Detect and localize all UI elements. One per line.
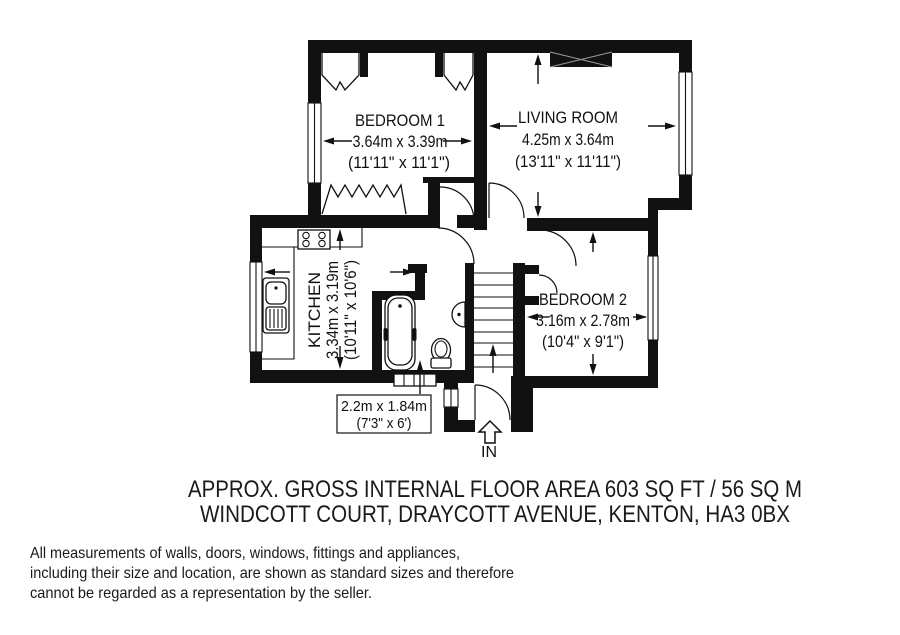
bath-icon <box>384 295 417 370</box>
disclaimer: All measurements of walls, doors, window… <box>30 545 514 602</box>
living-room-window-icon <box>679 72 692 175</box>
bedroom2-metric: 3.16m x 2.78m <box>536 311 630 330</box>
kitchen-metric: 3.34m x 3.19m <box>323 261 342 359</box>
entrance-arrow-icon <box>479 421 501 443</box>
porch-step-icon <box>394 374 436 386</box>
bathroom-callout: 2.2m x 1.84m (7'3" x 6') <box>337 395 431 433</box>
floorplan-drawing: BEDROOM 1 3.64m x 3.39m (11'11" x 11'1")… <box>0 0 900 635</box>
kitchen-imperial: (10'11" x 10'6") <box>341 260 360 360</box>
chimney-breast-icon <box>550 52 612 67</box>
bedroom2-imperial: (10'4" x 9'1") <box>542 332 624 351</box>
basin-icon <box>452 302 465 327</box>
disclaimer-line2: including their size and location, are s… <box>30 565 514 582</box>
disclaimer-line3: cannot be regarded as a representation b… <box>30 585 372 602</box>
bedroom1-window-icon <box>308 103 321 183</box>
living-room-imperial: (13'11" x 11'11") <box>515 152 621 171</box>
footer-area-line: APPROX. GROSS INTERNAL FLOOR AREA 603 SQ… <box>188 476 802 503</box>
bedroom1-imperial: (11'11" x 11'1") <box>348 153 450 172</box>
wardrobe-bay2-icon <box>435 52 473 90</box>
stairs-up-arrow-icon <box>490 344 497 356</box>
disclaimer-line1: All measurements of walls, doors, window… <box>30 545 460 562</box>
bedroom2-window-icon <box>648 256 658 340</box>
living-room-metric: 4.25m x 3.64m <box>522 130 614 149</box>
front-door-arc <box>475 385 510 420</box>
bathroom-door-arc <box>438 228 474 264</box>
bedroom2-name: BEDROOM 2 <box>539 290 627 309</box>
entrance-marker: IN <box>479 421 501 461</box>
bedroom2-door-arc <box>540 230 576 266</box>
living-room-name: LIVING ROOM <box>518 108 618 127</box>
kitchen-window-icon <box>250 262 262 352</box>
wardrobe-zigzag-icon <box>322 185 406 214</box>
floorplan-page: BEDROOM 1 3.64m x 3.39m (11'11" x 11'1")… <box>0 0 900 635</box>
bathroom-imperial: (7'3" x 6') <box>357 415 412 432</box>
bedroom1-metric: 3.64m x 3.39m <box>353 132 448 151</box>
footer-address-line: WINDCOTT COURT, DRAYCOTT AVENUE, KENTON,… <box>200 501 790 528</box>
bathroom-metric: 2.2m x 1.84m <box>341 398 427 415</box>
wardrobe-bay1-icon <box>322 52 368 90</box>
footer: APPROX. GROSS INTERNAL FLOOR AREA 603 SQ… <box>188 476 802 528</box>
sink-icon <box>263 278 289 333</box>
entrance-label: IN <box>481 444 497 461</box>
stairs <box>474 273 513 373</box>
porch-window-icon <box>444 389 458 407</box>
toilet-icon <box>431 339 451 369</box>
living-room-door-arc <box>489 183 524 218</box>
hob-icon <box>298 230 330 249</box>
kitchen-name: KITCHEN <box>305 272 324 348</box>
bedroom1-name: BEDROOM 1 <box>355 111 445 130</box>
